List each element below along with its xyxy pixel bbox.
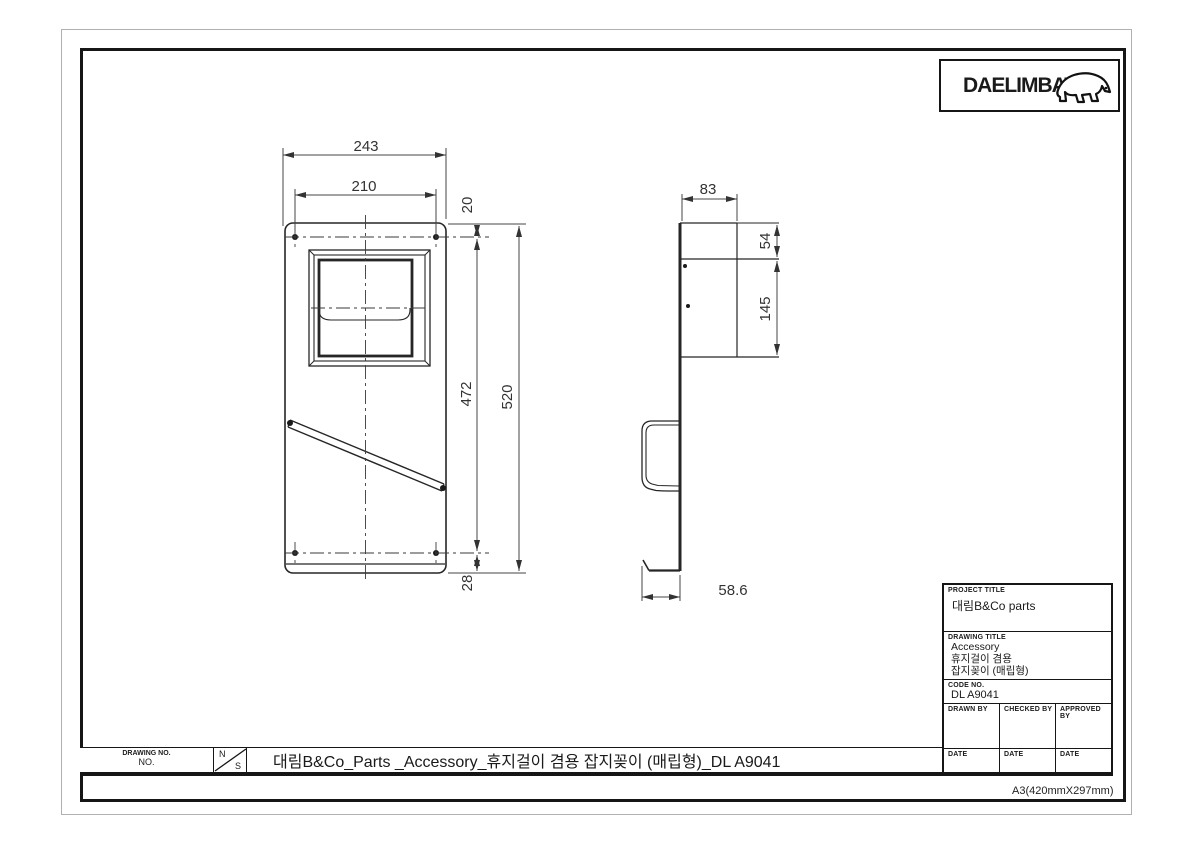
dim-lip-depth: 58.6 <box>718 582 747 599</box>
bottom-title-bar: DRAWING NO. NO. N S 대림B&Co_Parts _Access… <box>80 747 942 776</box>
drawing-no-label: DRAWING NO. <box>80 750 213 757</box>
drawn-by-label: DRAWN BY <box>944 704 1000 748</box>
checked-by-label: CHECKED BY <box>1000 704 1056 748</box>
project-title-section: PROJECT TITLE 대림B&Co parts <box>944 585 1111 632</box>
dim-top-offset: 20 <box>459 197 476 214</box>
title-block: PROJECT TITLE 대림B&Co parts DRAWING TITLE… <box>942 583 1113 776</box>
dim-overall-width: 243 <box>353 138 378 155</box>
drawing-no-value: NO. <box>80 757 213 767</box>
date-row: DATE DATE DATE <box>944 749 1111 774</box>
date-label-2: DATE <box>1000 749 1056 774</box>
scale-s-label: S <box>235 761 241 771</box>
dim-bottom-offset: 28 <box>459 575 476 592</box>
date-label-3: DATE <box>1056 749 1111 774</box>
project-title-value: 대림B&Co parts <box>948 594 1107 614</box>
dim-depth: 83 <box>700 181 717 198</box>
dim-overall-height: 520 <box>499 384 516 409</box>
drawing-title-line-3: 잡지꽂이 (매립형) <box>948 665 1107 677</box>
drawing-title-line-1: Accessory <box>948 641 1107 653</box>
dim-hole-spacing-h: 210 <box>351 178 376 195</box>
drawing-title-section: DRAWING TITLE Accessory 휴지걸이 겸용 잡지꽂이 (매립… <box>944 632 1111 680</box>
project-title-label: PROJECT TITLE <box>948 587 1107 594</box>
date-label-1: DATE <box>944 749 1000 774</box>
sign-row: DRAWN BY CHECKED BY APPROVED BY <box>944 704 1111 749</box>
side-view-dimensions <box>642 194 777 601</box>
code-no-label: CODE NO. <box>948 682 1107 689</box>
scale-n-label: N <box>219 749 226 759</box>
scale-ns-cell: N S <box>214 748 247 772</box>
dim-recess-top: 54 <box>757 233 774 250</box>
drawing-sheet: { "logo": { "brand": "DAELIMBATH" }, "vi… <box>0 0 1193 844</box>
drawing-title-label: DRAWING TITLE <box>948 634 1107 641</box>
approved-by-label: APPROVED BY <box>1056 704 1111 748</box>
dim-hole-spacing-v: 472 <box>458 381 475 406</box>
drawing-no-cell: DRAWING NO. NO. <box>80 748 214 772</box>
code-no-value: DL A9041 <box>948 689 1107 701</box>
dim-recess-height: 145 <box>757 296 774 321</box>
code-no-section: CODE NO. DL A9041 <box>944 680 1111 704</box>
side-view <box>642 223 779 571</box>
drawing-title-line-2: 휴지걸이 겸용 <box>948 653 1107 665</box>
drawing-main-title: 대림B&Co_Parts _Accessory_휴지걸이 겸용 잡지꽂이 (매립… <box>247 748 942 772</box>
paper-size-note: A3(420mmX297mm) <box>1012 785 1113 797</box>
